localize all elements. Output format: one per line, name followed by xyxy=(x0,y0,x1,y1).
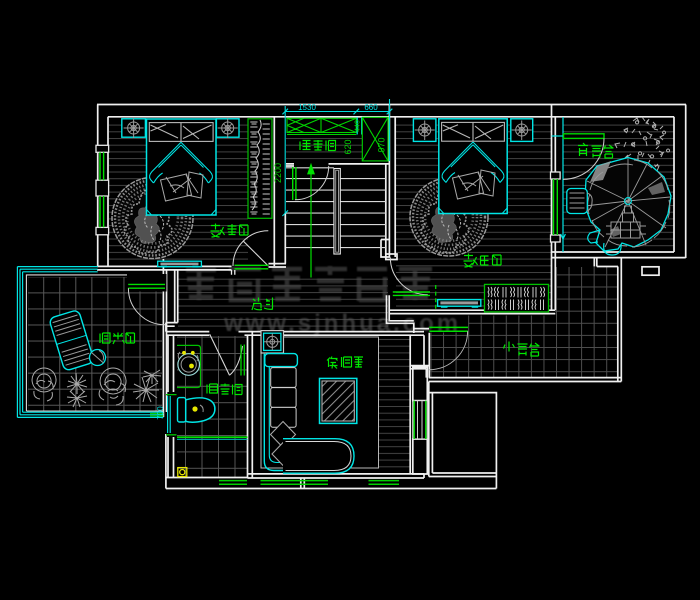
svg-text:620: 620 xyxy=(343,139,353,154)
svg-text:2200: 2200 xyxy=(273,163,283,183)
svg-text:700: 700 xyxy=(156,406,165,420)
svg-text:440: 440 xyxy=(354,120,361,132)
svg-text:660: 660 xyxy=(364,103,378,112)
svg-text:1530: 1530 xyxy=(298,103,316,112)
svg-text:970: 970 xyxy=(377,137,387,152)
